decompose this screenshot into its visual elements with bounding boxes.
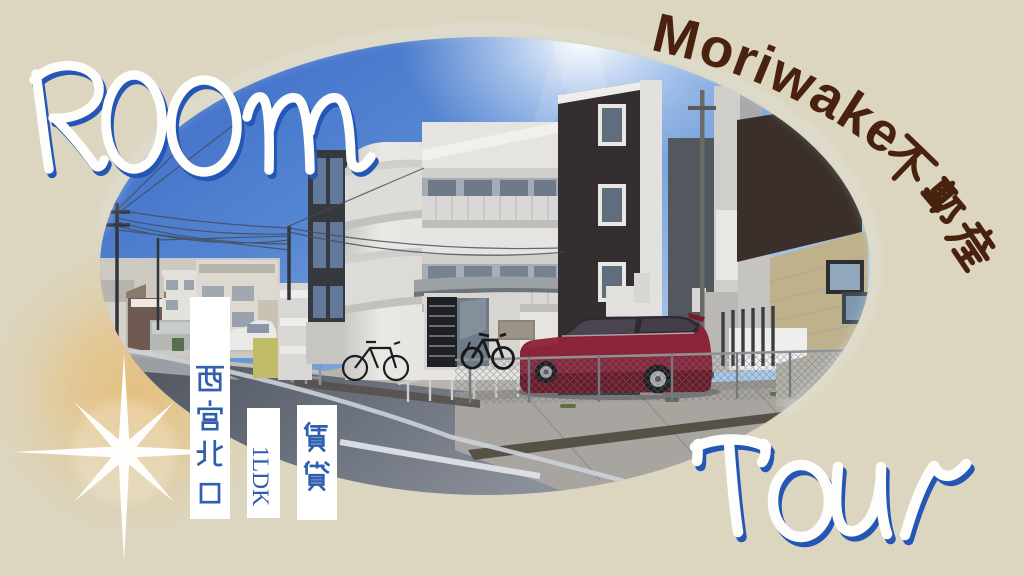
svg-text:1LDK: 1LDK bbox=[247, 446, 273, 506]
